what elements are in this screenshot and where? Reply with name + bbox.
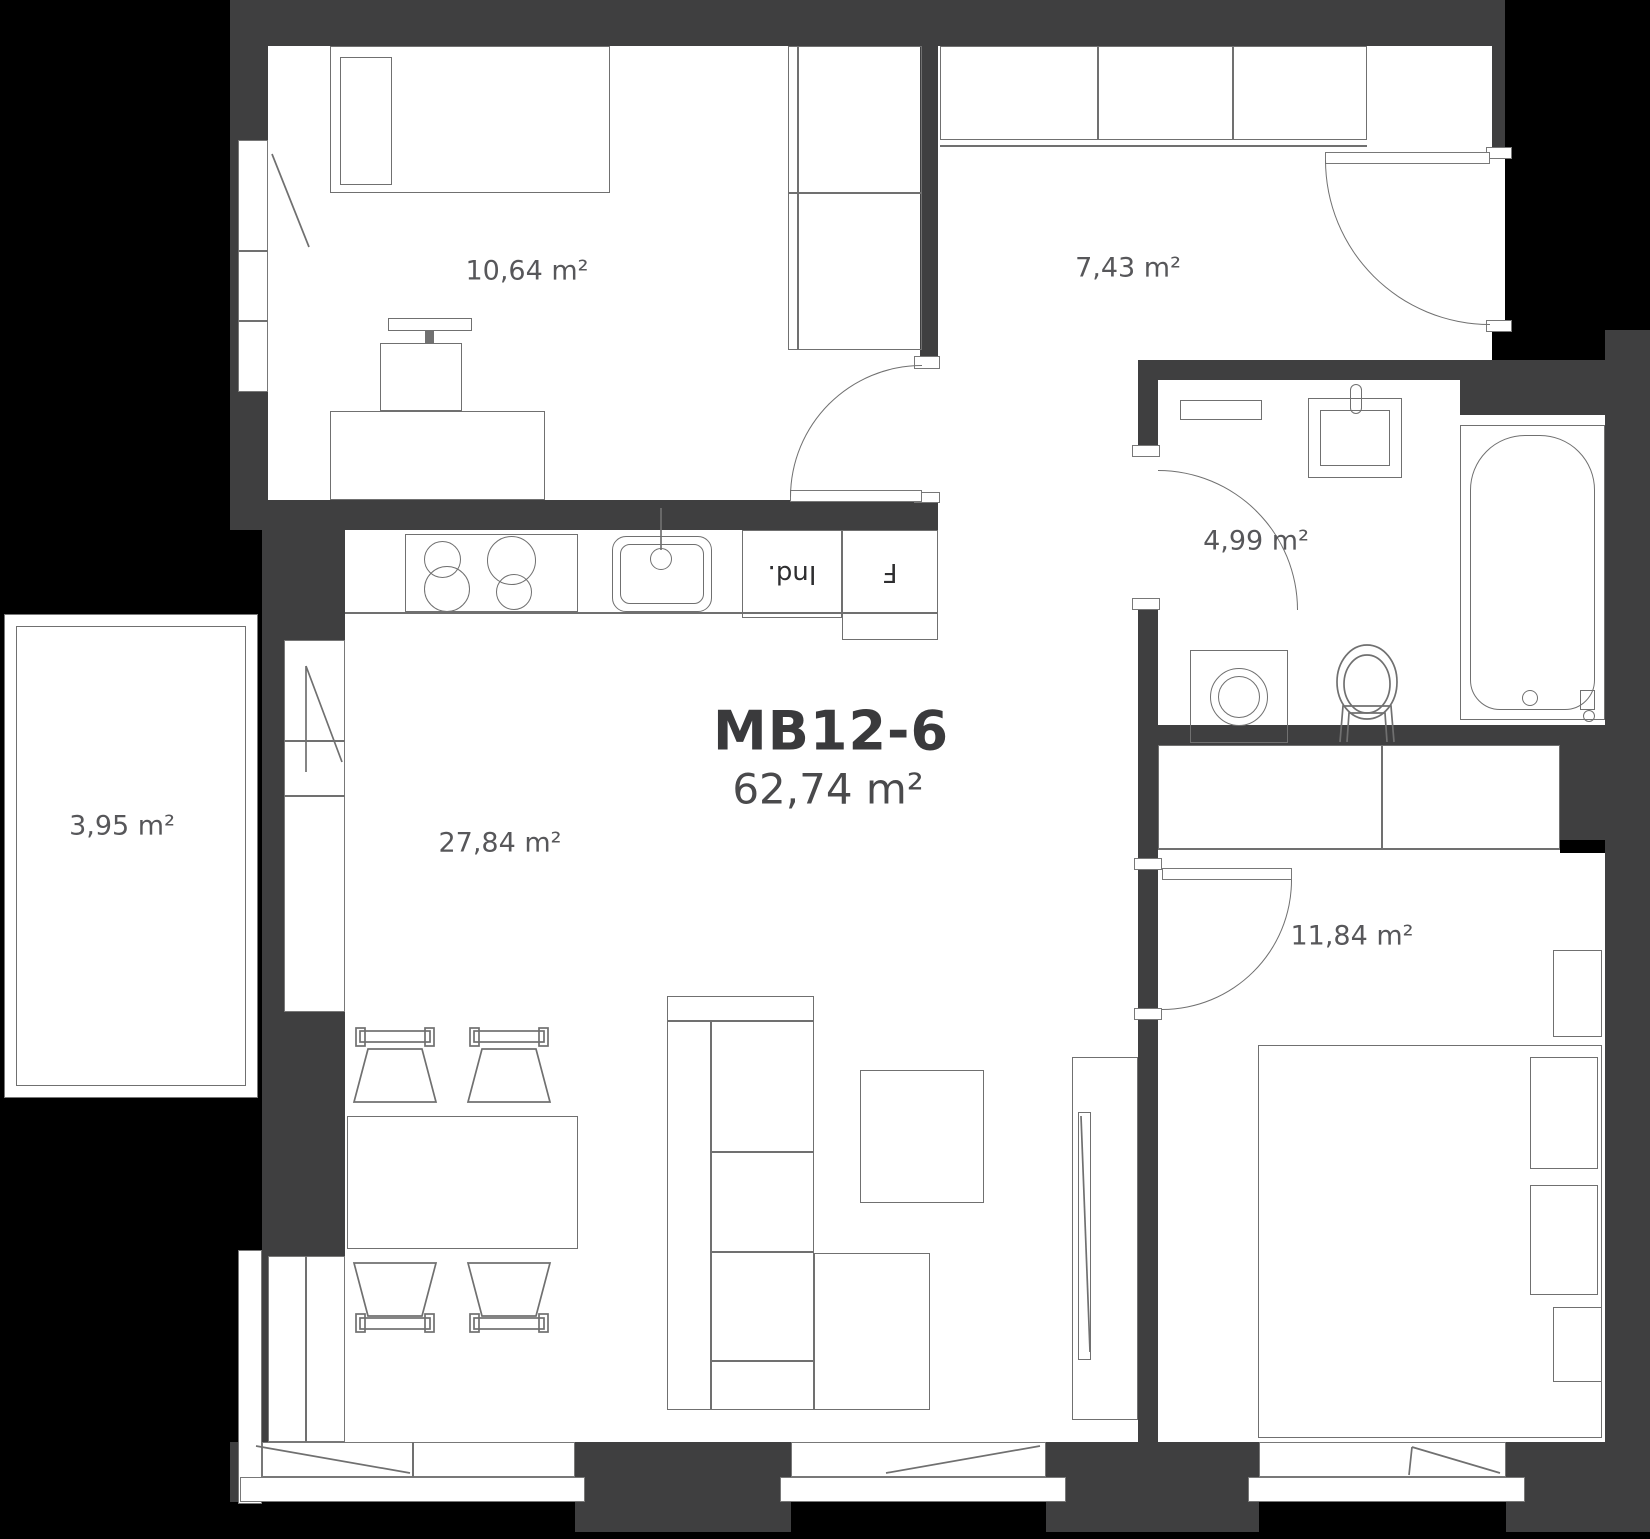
dining-chair — [354, 1028, 436, 1102]
toilet-bowl-inner — [1344, 655, 1390, 713]
area-label-hallway: 7,43 m² — [1075, 253, 1181, 284]
window-swing — [1409, 1447, 1500, 1475]
area-label-living: 27,84 m² — [438, 828, 561, 859]
unit-total-area: 62,74 m² — [732, 765, 923, 814]
floor-plan: Ind. F — [0, 0, 1650, 1539]
unit-id-title: MB12-6 — [713, 700, 949, 763]
area-label-balcony: 3,95 m² — [69, 811, 175, 842]
tv-diagonal — [1081, 1116, 1090, 1352]
area-label-bathroom: 4,99 m² — [1203, 526, 1309, 557]
area-label-room-top-left: 10,64 m² — [465, 256, 588, 287]
dining-chair — [468, 1263, 550, 1332]
window-swing — [886, 1446, 1040, 1473]
window-swing — [272, 154, 309, 247]
toilet-tank-inner — [1347, 713, 1387, 742]
balcony-door-swing — [306, 666, 342, 772]
dining-chair — [468, 1028, 550, 1102]
toilet-bowl — [1337, 645, 1397, 719]
window-swing — [256, 1446, 410, 1473]
dining-chair — [354, 1263, 436, 1332]
area-label-bedroom: 11,84 m² — [1290, 921, 1413, 952]
